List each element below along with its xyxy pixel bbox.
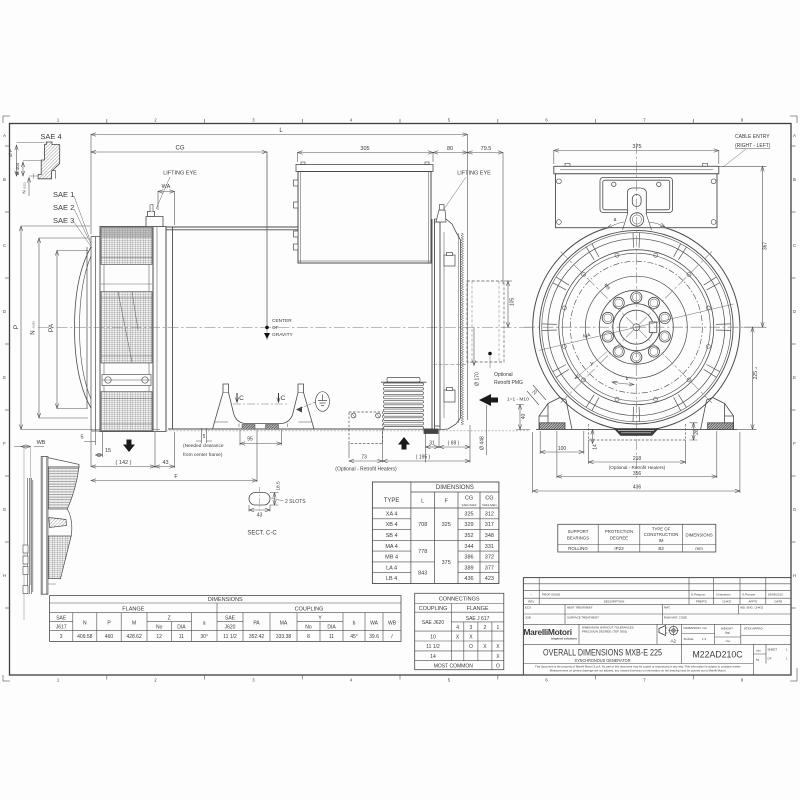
svg-text:( 195 ): ( 195 ) [416, 455, 431, 461]
svg-text:333.38: 333.38 [276, 634, 292, 640]
svg-text:LB 4: LB 4 [386, 576, 397, 582]
svg-text:IM: IM [659, 538, 664, 543]
svg-text:80: 80 [447, 146, 453, 152]
svg-text:inspired solutions: inspired solutions [551, 637, 577, 641]
svg-text:A2: A2 [671, 639, 677, 644]
svg-text:D: D [793, 309, 796, 314]
svg-text:H: H [793, 573, 796, 578]
svg-text:218: 218 [633, 456, 642, 462]
svg-text:(Optional - Retrofit Heaters): (Optional - Retrofit Heaters) [335, 467, 397, 473]
svg-text:Measurements on printed drawin: Measurements on printed drawings are not… [550, 669, 727, 673]
svg-text:352: 352 [464, 533, 473, 539]
svg-text:4: 4 [350, 118, 353, 123]
svg-text:11: 11 [329, 634, 334, 640]
svg-text:RAW MAT. CODE: RAW MAT. CODE [664, 616, 687, 620]
svg-text:2: 2 [154, 118, 157, 123]
svg-text:WB: WB [37, 440, 46, 446]
svg-text:436: 436 [633, 485, 642, 491]
svg-text:SB 4: SB 4 [386, 533, 398, 539]
svg-text:mm: mm [695, 546, 703, 551]
svg-text:COUPLING: COUPLING [295, 607, 324, 613]
svg-text:OF: OF [272, 325, 279, 331]
svg-text:SHEET: SHEET [768, 648, 778, 652]
svg-text:O: O [496, 664, 500, 670]
svg-text:B: B [3, 177, 6, 182]
svg-text:IP23: IP23 [614, 546, 624, 551]
svg-text:DIA: DIA [327, 625, 336, 631]
svg-text:409.58: 409.58 [77, 634, 93, 640]
svg-text:--: -- [530, 592, 532, 596]
svg-text:L: L [421, 499, 424, 505]
svg-text:348: 348 [485, 533, 494, 539]
svg-text:kg: kg [756, 658, 759, 662]
svg-text:APP'D: APP'D [749, 599, 759, 603]
svg-text:Optional: Optional [494, 372, 513, 378]
svg-text:B: B [793, 177, 796, 182]
svg-text:G.Paruzzi: G.Paruzzi [742, 592, 756, 596]
svg-text:DIMENSIONS: DIMENSIONS [436, 485, 474, 491]
svg-text:325: 325 [442, 522, 451, 528]
svg-text:ECS: ECS [525, 606, 531, 610]
svg-text:Ø 448: Ø 448 [480, 436, 486, 450]
svg-text:H: H [3, 573, 6, 578]
svg-text:D: D [3, 309, 6, 314]
svg-text:1: 1 [786, 657, 788, 661]
svg-text:DIMENSION: mm: DIMENSION: mm [684, 626, 708, 630]
svg-text:PROTECTION: PROTECTION [605, 529, 633, 534]
svg-text:73: 73 [361, 455, 367, 461]
svg-text:6: 6 [545, 678, 548, 683]
svg-text:a: a [203, 621, 206, 627]
svg-text:14: 14 [430, 654, 436, 660]
svg-text:DIMENSIONS: DIMENSIONS [208, 597, 243, 603]
svg-text:367: 367 [763, 242, 769, 251]
svg-text:MB 4: MB 4 [385, 555, 398, 561]
svg-text:FLANGE: FLANGE [467, 606, 489, 612]
svg-text:3: 3 [252, 678, 255, 683]
svg-text:M: M [132, 621, 136, 627]
svg-text:DESCRIPTION: DESCRIPTION [604, 599, 625, 603]
svg-text:317: 317 [485, 522, 494, 528]
svg-text:352.42: 352.42 [249, 634, 265, 640]
svg-text:SAE4-SAE3: SAE4-SAE3 [462, 503, 477, 507]
svg-text:( 142 ): ( 142 ) [116, 460, 132, 466]
svg-text:IND. ENG. CHK'D: IND. ENG. CHK'D [740, 606, 763, 610]
svg-text:F: F [793, 441, 796, 446]
svg-text:E: E [793, 375, 796, 380]
svg-text:18/09/2013: 18/09/2013 [768, 592, 783, 596]
svg-text:1: 1 [786, 648, 788, 652]
svg-text:375: 375 [632, 144, 641, 150]
svg-text:18.5: 18.5 [276, 481, 282, 491]
svg-text:5: 5 [80, 435, 83, 441]
svg-text:225 +1: 225 +1 [753, 366, 759, 379]
svg-text:ATEX APPRO: ATEX APPRO [744, 627, 763, 631]
svg-text:SAE 2: SAE 2 [53, 203, 74, 212]
svg-text:PA: PA [253, 621, 260, 627]
svg-text:11: 11 [179, 634, 184, 640]
svg-text:b: b [353, 621, 356, 627]
svg-text:TYPE: TYPE [384, 498, 400, 504]
svg-text:325: 325 [464, 511, 473, 517]
svg-text:PRECISION DEGREE: (TEF 3901): PRECISION DEGREE: (TEF 3901) [582, 630, 627, 634]
svg-text:J617: J617 [56, 625, 67, 631]
svg-text:Ø 170: Ø 170 [475, 372, 481, 386]
svg-text:XB 4: XB 4 [386, 522, 398, 528]
svg-text:DATE: DATE [775, 599, 783, 603]
svg-text:DEGREE: DEGREE [610, 536, 628, 541]
svg-text:CG: CG [176, 146, 185, 152]
svg-text:SAE3-SAE1: SAE3-SAE1 [482, 503, 497, 507]
svg-text:1: 1 [57, 678, 60, 683]
svg-text:LIFTING EYE: LIFTING EYE [163, 171, 197, 177]
svg-text:Z: Z [168, 616, 171, 622]
svg-text:105: 105 [510, 298, 516, 307]
svg-text:2: 2 [484, 625, 487, 631]
svg-text:(RIGHT - LEFT): (RIGHT - LEFT) [735, 143, 771, 149]
svg-text:SAE: SAE [225, 616, 236, 622]
svg-text:10: 10 [430, 634, 436, 640]
svg-text:460: 460 [105, 634, 114, 640]
svg-text:26: 26 [694, 429, 700, 435]
svg-text:312: 312 [485, 511, 494, 517]
svg-text:39.6: 39.6 [369, 634, 379, 640]
svg-text:5: 5 [448, 118, 451, 123]
svg-text:708: 708 [418, 522, 427, 528]
svg-text:F: F [3, 441, 6, 446]
svg-text:XA 4: XA 4 [386, 511, 398, 517]
svg-text:C: C [3, 243, 6, 248]
svg-text:5: 5 [203, 434, 206, 440]
svg-text:D.Pregnon: D.Pregnon [691, 592, 706, 596]
svg-text:n/a: n/a [726, 639, 731, 643]
svg-text:N: N [83, 621, 87, 627]
svg-text:344: 344 [464, 544, 473, 550]
svg-text:331: 331 [485, 544, 494, 550]
svg-text:CABLE ENTRY: CABLE ENTRY [735, 134, 770, 140]
svg-text:SAE 3: SAE 3 [53, 216, 74, 225]
svg-text:Ø 404: Ø 404 [15, 162, 20, 175]
svg-text:CONNECTINGS: CONNECTINGS [439, 597, 480, 603]
svg-text:(kg): (kg) [725, 631, 730, 635]
svg-text:79.5: 79.5 [481, 146, 492, 152]
svg-text:43: 43 [257, 513, 263, 519]
svg-text:G: G [3, 507, 6, 512]
svg-text:356: 356 [633, 471, 642, 477]
svg-text:MarelliMotori: MarelliMotori [524, 627, 572, 637]
svg-text:5: 5 [448, 678, 451, 683]
svg-text:377: 377 [485, 565, 494, 571]
svg-text:436: 436 [464, 576, 473, 582]
svg-text:43: 43 [162, 460, 168, 466]
svg-text:(Optional - Retrofit Heaters): (Optional - Retrofit Heaters) [609, 465, 666, 470]
svg-text:LA 4: LA 4 [386, 565, 397, 571]
svg-text:PA: PA [48, 323, 55, 332]
svg-text:40: 40 [521, 414, 527, 420]
svg-text:4: 4 [350, 678, 353, 683]
svg-text:PREP'D: PREP'D [696, 599, 708, 603]
svg-text:100: 100 [558, 446, 567, 452]
svg-text:30°: 30° [200, 634, 208, 640]
svg-text:2: 2 [154, 678, 157, 683]
svg-text:G: G [793, 507, 796, 512]
svg-text:WA: WA [370, 621, 379, 627]
svg-text:M22AD210C: M22AD210C [693, 650, 743, 660]
svg-text:MAT.: MAT. [664, 606, 671, 610]
svg-text:20: 20 [531, 388, 538, 395]
svg-text:REV: REV [528, 599, 534, 603]
svg-text:C: C [239, 395, 244, 402]
svg-text:8: 8 [741, 118, 744, 123]
svg-text:423: 423 [485, 576, 494, 582]
svg-text:COUPLING: COUPLING [419, 606, 448, 612]
svg-text:O: O [469, 644, 473, 650]
svg-text:SAE 4: SAE 4 [40, 132, 61, 141]
svg-text:No: No [156, 625, 163, 631]
svg-text:I.Grassiaro: I.Grassiaro [716, 592, 731, 596]
svg-text:778: 778 [418, 549, 427, 555]
svg-text:Ø P: Ø P [8, 149, 13, 157]
svg-text:C: C [793, 243, 796, 248]
svg-text:8: 8 [741, 678, 744, 683]
svg-text:12: 12 [156, 634, 162, 640]
svg-text:372: 372 [485, 555, 494, 561]
svg-text:7: 7 [643, 118, 646, 123]
svg-text:2 SLOTS: 2 SLOTS [285, 499, 306, 505]
svg-text:389: 389 [464, 565, 473, 571]
svg-text:WA: WA [162, 184, 171, 190]
svg-text:SYNCHRONOUS GENERATOR: SYNCHRONOUS GENERATOR [575, 658, 631, 663]
svg-text:LIFTING EYE: LIFTING EYE [457, 171, 491, 177]
svg-text:8: 8 [307, 634, 310, 640]
svg-text:F: F [174, 474, 178, 480]
svg-text:SECT. C-C: SECT. C-C [247, 531, 277, 537]
svg-text:BEARINGS: BEARINGS [567, 536, 589, 541]
svg-text:MA 4: MA 4 [385, 544, 398, 550]
svg-text:3: 3 [60, 634, 63, 640]
svg-text:A: A [3, 133, 6, 138]
svg-text:Y: Y [590, 362, 594, 368]
svg-text:DIA: DIA [177, 625, 186, 631]
svg-text:15: 15 [105, 448, 111, 454]
svg-text:CENTER: CENTER [272, 318, 292, 324]
svg-text:CG: CG [485, 496, 493, 502]
svg-text:329: 329 [464, 522, 473, 528]
svg-text:SCALE: SCALE [684, 637, 694, 641]
svg-text:(Needed clearance: (Needed clearance [183, 443, 224, 449]
svg-text:843: 843 [418, 571, 427, 577]
svg-text:SAE J620: SAE J620 [422, 620, 444, 626]
svg-text:L: L [279, 128, 283, 134]
svg-text:JOB: JOB [525, 616, 531, 620]
svg-text:FLANGE: FLANGE [122, 607, 144, 613]
svg-text:1=1 - M10: 1=1 - M10 [507, 397, 529, 403]
svg-text:375: 375 [442, 560, 451, 566]
svg-text:SAE: SAE [56, 616, 67, 622]
svg-text:E: E [3, 375, 6, 380]
svg-text:7: 7 [643, 678, 646, 683]
svg-text:3: 3 [470, 625, 473, 631]
svg-text:TYPE OF: TYPE OF [652, 527, 671, 532]
svg-text:Retrofit PMG: Retrofit PMG [494, 380, 523, 386]
svg-text:No: No [305, 625, 312, 631]
svg-text:GRAVITY: GRAVITY [272, 332, 294, 338]
svg-text:428.62: 428.62 [126, 634, 142, 640]
svg-text:N -0.013: N -0.013 [22, 182, 27, 194]
svg-text:J620: J620 [225, 625, 236, 631]
svg-text:305: 305 [360, 146, 369, 152]
svg-text:14: 14 [593, 444, 599, 450]
svg-text:4: 4 [456, 625, 459, 631]
svg-text:C: C [281, 395, 286, 402]
svg-text:1: 1 [497, 625, 500, 631]
svg-text:6: 6 [545, 118, 548, 123]
svg-text:SAE J 617: SAE J 617 [466, 616, 490, 622]
svg-text:HEAT TREATMENT: HEAT TREATMENT [567, 606, 593, 610]
svg-text:95: 95 [247, 437, 253, 443]
svg-text:OF: OF [768, 657, 772, 661]
svg-text:OVERALL DIMENSIONS MXB-E 225: OVERALL DIMENSIONS MXB-E 225 [543, 647, 662, 657]
svg-text:PROF ISSUE: PROF ISSUE [542, 592, 560, 596]
svg-text:3: 3 [252, 118, 255, 123]
svg-text:45°: 45° [350, 634, 358, 640]
svg-text:CHK'D: CHK'D [722, 599, 732, 603]
svg-text:SURFACE TREATMENT: SURFACE TREATMENT [567, 616, 599, 620]
svg-text:CG: CG [465, 496, 473, 502]
svg-text:386: 386 [464, 555, 473, 561]
svg-text:MA: MA [583, 332, 592, 340]
svg-text:N -0.013: N -0.013 [31, 321, 37, 335]
svg-text:DIMENSIONS: DIMENSIONS [685, 533, 712, 538]
svg-text:1: 1 [57, 118, 60, 123]
svg-text:from center frame): from center frame) [183, 452, 223, 458]
svg-text:B2: B2 [658, 546, 664, 551]
svg-text:WB: WB [388, 621, 397, 627]
svg-text:CONSTRUCTION: CONSTRUCTION [644, 532, 679, 537]
svg-text:P: P [13, 325, 20, 329]
svg-text:A: A [793, 133, 796, 138]
svg-text:1:3: 1:3 [702, 637, 707, 641]
svg-text:SAE 1: SAE 1 [53, 190, 74, 199]
svg-text:MA: MA [280, 621, 288, 627]
svg-text:b: b [626, 376, 629, 382]
svg-text:11 1/2: 11 1/2 [223, 634, 237, 640]
svg-text:mm: mm [756, 649, 761, 653]
svg-text:ROLLING: ROLLING [568, 546, 588, 551]
svg-text:31: 31 [429, 441, 435, 447]
svg-text:SUPPORT: SUPPORT [568, 529, 589, 534]
svg-text:a: a [614, 217, 617, 223]
svg-text:11 1/2: 11 1/2 [426, 644, 440, 650]
svg-text:MOST COMMON: MOST COMMON [434, 664, 473, 670]
svg-text:( 69 ): ( 69 ) [448, 441, 460, 447]
